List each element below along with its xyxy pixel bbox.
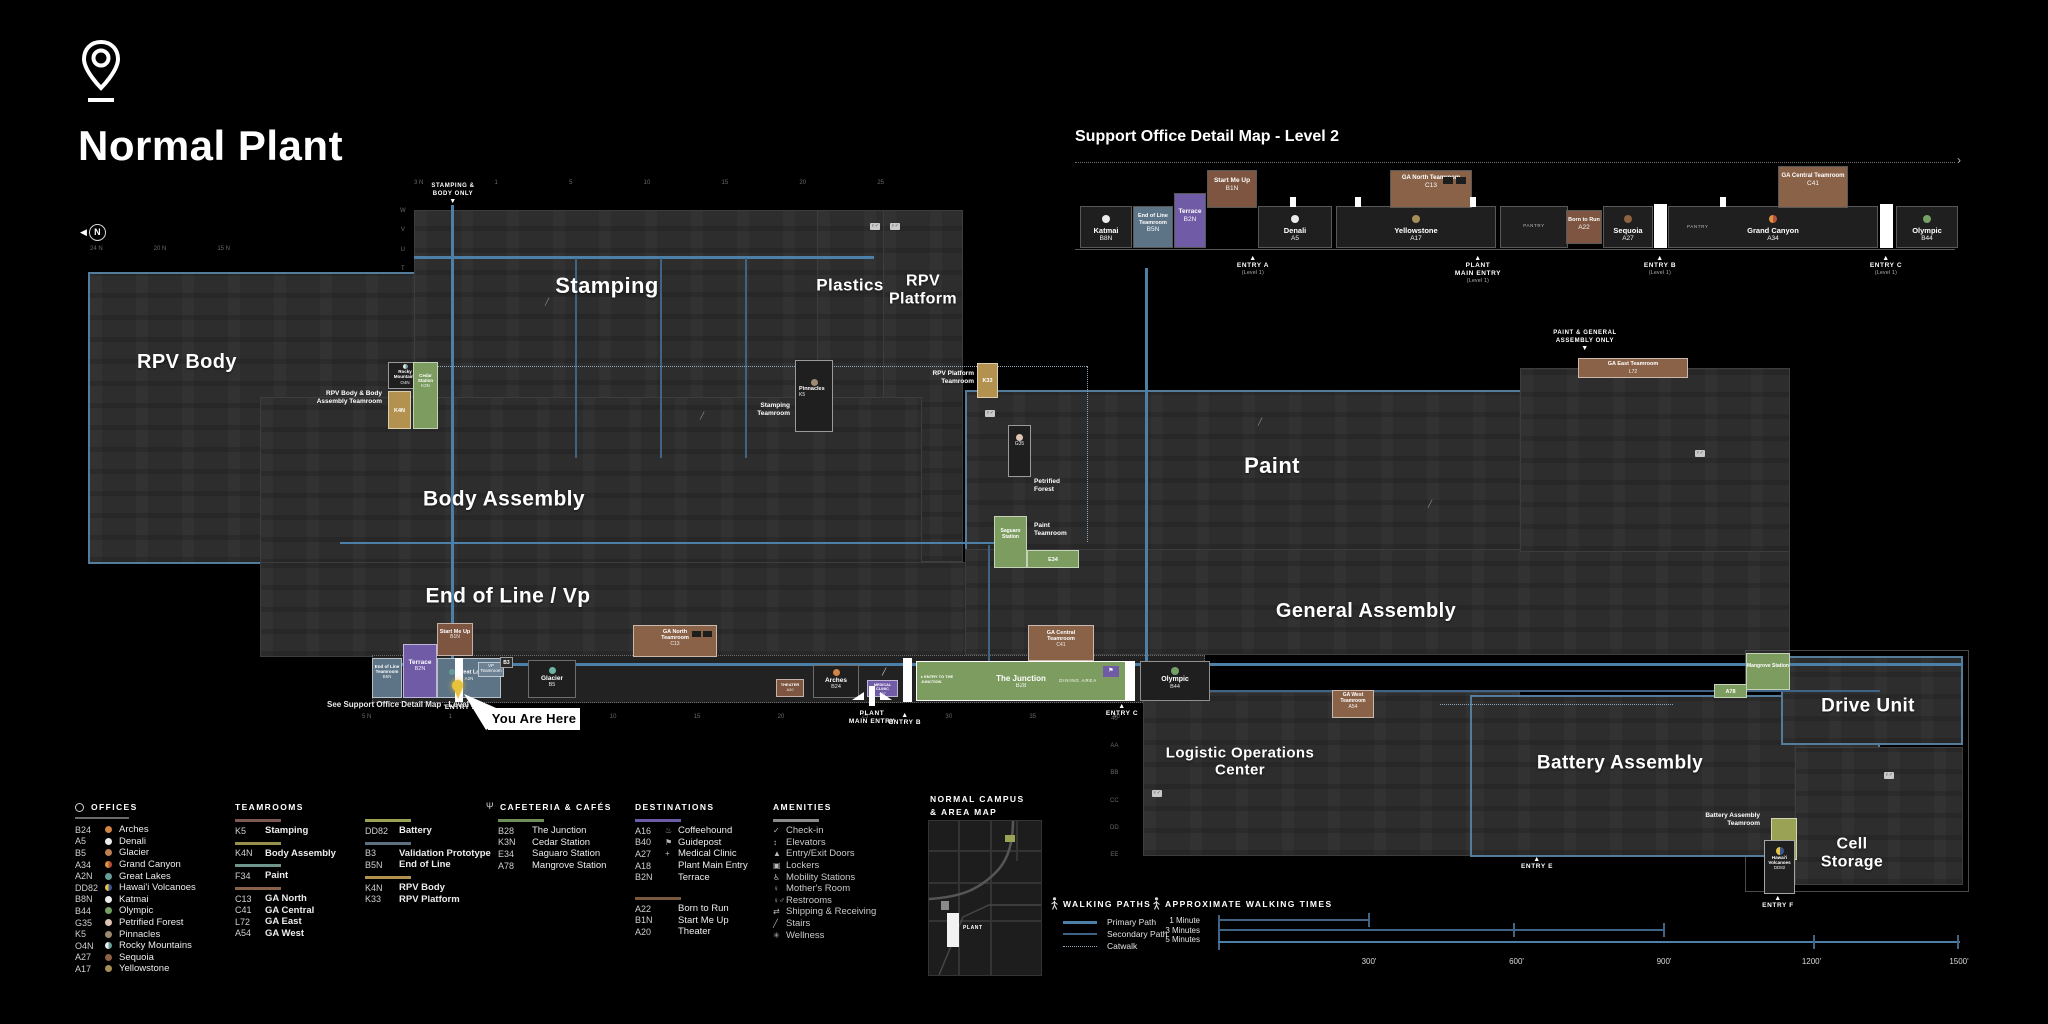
guidepost-icon: ⚑ <box>1103 666 1119 677</box>
stairs-icon: ╱ <box>700 412 704 420</box>
plant-main-entry-icon <box>850 686 894 708</box>
area-rpv-body: RPV Body <box>137 351 237 373</box>
label-rpv-body-teamroom: RPV Body & Body Assembly Teamroom <box>300 390 382 406</box>
callout-mangrove: Mangrove Station <box>1746 653 1790 690</box>
location-pin-icon <box>79 38 123 114</box>
grid-top-numbers: 3 N1510152025 <box>414 180 884 186</box>
amenity-icon: ▲ <box>773 849 786 858</box>
strip-olympic: Olympic B44 <box>1140 661 1210 701</box>
office-dot-icon <box>105 849 112 856</box>
destination-icon: ♨ <box>665 826 678 835</box>
legend-amenities-list: ✓Check-in↕Elevators▲Entry/Exit Doors▣Loc… <box>773 814 876 941</box>
building-end-of-line <box>260 562 968 657</box>
door-tick <box>1720 197 1726 207</box>
strip-theater: Theater A20 <box>776 679 804 697</box>
room-denali: DenaliA5 <box>1258 206 1332 248</box>
door-tick <box>1355 197 1361 207</box>
stairs-icon: ╱ <box>1428 500 1432 508</box>
amenity-icon: ✓ <box>773 826 786 835</box>
catwalk-dotted <box>1087 366 1088 542</box>
restroom-icon: ♀♂ <box>870 223 880 230</box>
callout-pinnacles: Pinnacles K5 <box>795 360 833 432</box>
catwalk-swatch <box>1063 946 1097 947</box>
destination-icon: + <box>665 849 678 858</box>
area-paint: Paint <box>1244 454 1300 478</box>
building-ga-east <box>1520 368 1790 552</box>
entry-b-column <box>1654 204 1667 248</box>
callout-a78: A78 <box>1714 684 1747 698</box>
office-dot-icon <box>105 942 112 949</box>
compass-n: N <box>89 224 106 241</box>
door-tick <box>1470 197 1476 207</box>
walking-paths-heading: WALKING PATHS <box>1063 899 1151 909</box>
offices-icon <box>75 803 84 812</box>
legend-office-item: K5 Pinnacles <box>75 928 196 940</box>
compass: ◀ N <box>80 224 106 241</box>
entry-e: ▲ENTRY E <box>1521 856 1553 871</box>
campus-inset-map: PLANT <box>928 820 1042 976</box>
entry-paint-ga-only: PAINT & GENERALASSEMBLY ONLY ▼ <box>1553 330 1617 352</box>
entry-c-column <box>1880 204 1893 248</box>
room-olympic: OlympicB44 <box>1896 206 1958 248</box>
area-body-assembly: Body Assembly <box>423 487 585 510</box>
legend-offices-list: B24 Arches A5 Denali B5 Glacier A34 Gran… <box>75 824 196 975</box>
entry-f: ▲ENTRY F <box>1762 895 1794 910</box>
plant-map-kiosk: Normal Plant Support Office Detail Map -… <box>0 0 2048 1024</box>
office-dot-icon <box>105 954 112 961</box>
legend-office-item: B24 Arches <box>75 824 196 836</box>
walking-times-labels: 1 Minute3 Minutes5 Minutes <box>1128 916 1200 945</box>
amenity-icon: ♀♂ <box>773 896 786 905</box>
amenity-icon: ✳ <box>773 931 786 940</box>
restroom-icon: ♀♂ <box>1152 790 1162 797</box>
legend-divider <box>75 817 129 819</box>
restroom-icon: ♀♂ <box>1695 450 1705 457</box>
entry-stamping-body-only: STAMPING &BODY ONLY ▼ <box>431 183 474 205</box>
callout-cedar-station: Cedar Station K3N <box>413 362 438 429</box>
office-dot-icon <box>105 919 112 926</box>
office-dot-icon <box>105 884 112 891</box>
destination-icon: ⚑ <box>665 838 678 847</box>
legend-teamrooms-col2: DD82Battery B3Validation PrototypeB5NEnd… <box>365 814 491 905</box>
detail-entry-plant-main: ▲ PLANT MAIN ENTRY (Level 1) <box>1455 255 1501 285</box>
room-yellowstone: YellowstoneA17 <box>1336 206 1496 248</box>
amenity-icon: ╱ <box>773 919 786 928</box>
entry-b-column-main <box>903 658 912 702</box>
path-secondary <box>1143 690 1880 692</box>
grid-top-left-numbers: 24 N20 N15 N <box>90 246 230 252</box>
callout-e34: E34 <box>1027 550 1079 568</box>
legend-office-item: B44 Olympic <box>75 905 196 917</box>
amenity-icon: ⇄ <box>773 907 786 916</box>
office-dot-icon <box>105 838 112 845</box>
primary-path-swatch <box>1063 921 1097 924</box>
legend-office-item: A2N Great Lakes <box>75 870 196 882</box>
legend-cafeteria-list: B28The JunctionK3NCedar StationE34Saguar… <box>498 814 606 871</box>
callout-k4n: K4N <box>388 391 411 429</box>
legend-office-item: B8N Katmai <box>75 894 196 906</box>
detail-entry-b: ▲ ENTRY B (Level 1) <box>1644 255 1676 276</box>
room-pantry-1: PANTRY <box>1500 206 1568 248</box>
restroom-icon: ♀♂ <box>1884 772 1894 779</box>
office-dot-icon <box>105 965 112 972</box>
label-battery-teamroom: Battery Assembly Teamroom <box>1700 812 1760 828</box>
strip-start-me-up: Start Me Up B1N <box>437 623 473 656</box>
tick <box>1663 923 1665 937</box>
path-secondary <box>745 258 747 458</box>
callout-ga-west: GA West Teamroom A54 <box>1332 690 1374 718</box>
legend-office-item: G35 Petrified Forest <box>75 917 196 929</box>
strip-terrace: Terrace B2N <box>403 644 437 698</box>
entry-c: ▲ENTRY C <box>1106 703 1138 718</box>
path-east-vertical <box>1145 268 1148 666</box>
area-plastics: Plastics <box>816 277 883 296</box>
compass-arrow-icon: ◀ <box>80 227 87 238</box>
detail-map-baseline <box>1075 249 1955 250</box>
catwalk-dotted <box>1440 704 1673 705</box>
area-battery: Battery Assembly <box>1537 754 1703 775</box>
detail-map-divider <box>1075 162 1955 163</box>
tick <box>1957 935 1959 949</box>
you-are-here-label: You Are Here <box>488 708 580 730</box>
label-stamping-teamroom: Stamping Teamroom <box>742 402 790 418</box>
area-drive-unit: Drive Unit <box>1821 697 1915 718</box>
room-sequoia: SequoiaA27 <box>1603 206 1653 248</box>
tick <box>1368 913 1370 927</box>
legend-office-item: O4N Rocky Mountains <box>75 940 196 952</box>
area-stamping: Stamping <box>555 274 658 298</box>
legend-cafeteria-heading: CAFETERIA & CAFÉS <box>500 802 612 812</box>
legend-office-item: B5 Glacier <box>75 847 196 859</box>
see-detail-note: See Support Office Detail Map - Level 2 <box>327 700 475 709</box>
label-rpv-platform-teamroom: RPV Platform Teamroom <box>930 370 974 386</box>
legend-office-item: A17 Yellowstone <box>75 963 196 975</box>
walker-icon <box>1050 897 1059 910</box>
room-katmai: KatmaiB8N <box>1080 206 1132 248</box>
room-ga-north-teamroom: GA North Teamroom C13 <box>1390 170 1472 208</box>
tick <box>1813 935 1815 949</box>
legend-offices-heading: OFFICES <box>91 802 138 812</box>
callout-ga-central: GA Central Teamroom C41 <box>1028 625 1094 661</box>
callout-petrified-forest: G35 <box>1008 425 1031 477</box>
path-stamping-corridor <box>414 256 874 259</box>
office-dot-icon <box>105 931 112 938</box>
label-petrified-forest: Petrified Forest <box>1034 478 1074 494</box>
legend-teamrooms-col1: K5Stamping K4NBody Assembly F34Paint C13… <box>235 814 336 939</box>
room-start-me-up: Start Me Up B1N <box>1207 170 1257 208</box>
path-eol-corridor <box>340 542 1014 544</box>
scale-labels: 300'600'900'1200'1500' <box>1350 957 1978 966</box>
room-ga-central-teamroom: GA Central Teamroom C41 <box>1778 166 1848 208</box>
area-general-assembly: General Assembly <box>1276 600 1456 622</box>
amenity-icon: ♀ <box>773 884 786 893</box>
office-dot-icon <box>105 861 112 868</box>
detail-entry-c: ▲ ENTRY C (Level 1) <box>1870 255 1902 276</box>
page-title: Normal Plant <box>78 122 343 170</box>
restroom-icon: ♀♂ <box>985 410 995 417</box>
room-end-of-line-teamroom: End of Line Teamroom B5N <box>1133 206 1173 248</box>
time-line-3 <box>1218 929 1665 931</box>
stairs-icon: ╱ <box>1258 418 1262 426</box>
amenity-icon: ↕ <box>773 838 786 847</box>
grid-loc-letters: 40AABBCCDDEE <box>1110 716 1119 858</box>
legend-destinations-heading: DESTINATIONS <box>635 802 714 812</box>
office-dot-icon <box>105 873 112 880</box>
stairs-icon: ╱ <box>882 668 886 676</box>
door-tick <box>1290 197 1296 207</box>
restroom-icon: ♀♂ <box>890 223 900 230</box>
legend-teamrooms-heading: TEAMROOMS <box>235 802 304 812</box>
label-paint-teamroom: Paint Teamroom <box>1034 522 1070 538</box>
callout-ga-east: GA East Teamroom L72 <box>1578 358 1688 378</box>
area-logistics: Logistic OperationsCenter <box>1166 746 1314 779</box>
entry-b: ▲ENTRY B <box>889 712 921 727</box>
legend-office-item: A34 Grand Canyon <box>75 859 196 871</box>
callout-k33: K33 <box>977 363 998 398</box>
callout-saguaro-station: Saguaro Station <box>994 516 1027 568</box>
detail-map-arrow-icon: › <box>1957 153 1961 167</box>
strip-b3-chip: B3 <box>500 657 513 668</box>
legend-amenities-heading: AMENITIES <box>773 802 832 812</box>
secondary-path-swatch <box>1063 933 1097 935</box>
room-terrace: Terrace B2N <box>1174 193 1206 248</box>
walker-icon <box>1152 897 1161 910</box>
entry-c-column-main <box>1126 661 1135 701</box>
office-dot-icon <box>105 826 112 833</box>
legend-destinations-list: A16♨CoffeehoundB40⚑GuidepostA27+Medical … <box>635 814 748 938</box>
strip-glacier: Glacier B5 <box>528 660 576 698</box>
path-secondary <box>660 258 662 458</box>
grid-left-letters: WVUT <box>400 208 406 272</box>
strip-end-of-line-teamroom: End of Line Teamroom B5N <box>372 658 402 698</box>
walking-times-heading: APPROXIMATE WALKING TIMES <box>1165 899 1333 909</box>
legend-office-item: A27 Sequoia <box>75 952 196 964</box>
stairs-icon: ╱ <box>545 298 549 306</box>
callout-ga-north: GA North Teamroom C13 <box>633 625 717 657</box>
time-line-1 <box>1218 919 1369 921</box>
callout-hawaii-volcanoes: Hawai'i Volcanoes DD82 <box>1764 840 1795 894</box>
campus-map-heading: NORMAL CAMPUS& AREA MAP <box>930 793 1025 819</box>
detail-map-title: Support Office Detail Map - Level 2 <box>1075 128 1339 146</box>
room-pantry-2: PANTRY Grand CanyonA34 <box>1668 206 1878 248</box>
fork-icon: Ψ <box>486 801 494 811</box>
strip-the-junction: ▸ ENTRY TO THE JUNCTION The Junction B28… <box>916 661 1126 701</box>
office-dot-icon <box>105 896 112 903</box>
tick <box>1513 923 1515 937</box>
office-dot-icon <box>105 907 112 914</box>
room-born-to-run: Born to Run A22 <box>1566 210 1602 244</box>
time-line-5 <box>1218 941 1960 943</box>
area-rpv-platform: RPVPlatform <box>889 272 957 307</box>
legend-office-item: A5 Denali <box>75 836 196 848</box>
area-cell-storage: CellStorage <box>1821 835 1883 870</box>
campus-plant-label: PLANT <box>963 925 983 931</box>
detail-entry-a: ▲ ENTRY A (Level 1) <box>1237 255 1269 276</box>
amenity-icon: ▣ <box>773 861 786 870</box>
area-end-of-line: End of Line / Vp <box>425 584 590 607</box>
amenity-icon: ♿ <box>773 873 786 882</box>
legend-office-item: DD82 Hawai'i Volcanoes <box>75 882 196 894</box>
